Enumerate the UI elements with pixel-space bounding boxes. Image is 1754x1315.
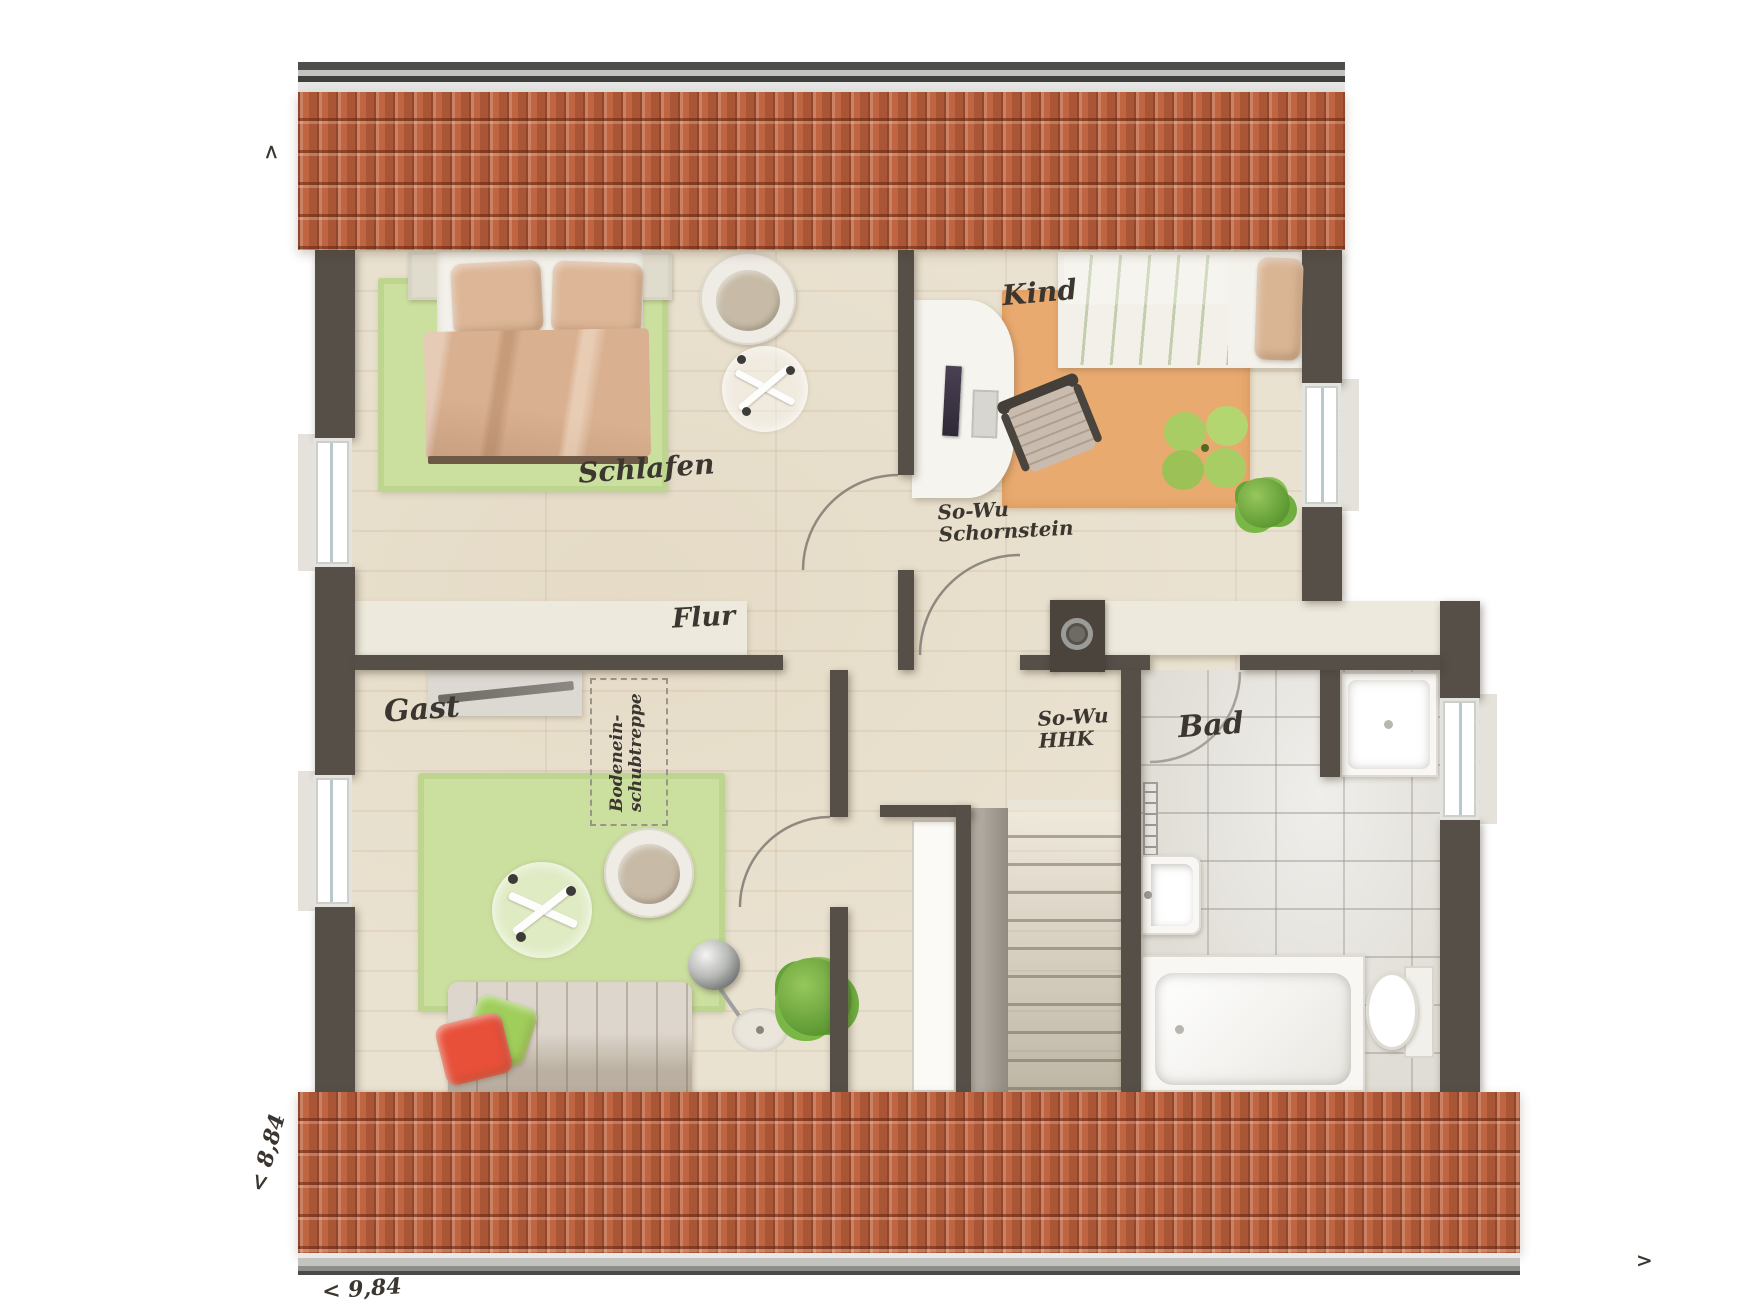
annotation-radiator-line2: HHK [1038, 726, 1094, 753]
north-arrow-icon: > [258, 144, 282, 161]
room-label-kind: Kind [1001, 273, 1079, 312]
annotation-radiator: So-Wu HHK [1037, 704, 1110, 752]
roof-gutter [298, 1258, 1520, 1266]
door-swing-icon [920, 555, 1020, 655]
roof-top [298, 92, 1345, 250]
annotation-loft-ladder-line2: schubtreppe [626, 693, 646, 812]
room-label-gast: Gast [383, 689, 461, 729]
door-swing-icon [803, 475, 898, 570]
dimension-width: < 9,84 [321, 1273, 402, 1304]
room-label-flur: Flur [671, 600, 736, 634]
roof-bottom [298, 1092, 1520, 1253]
direction-arrow-icon: > [1636, 1248, 1653, 1272]
room-label-bad: Bad [1177, 706, 1245, 746]
floorplan-canvas: Schlafen Kind Flur Gast Bad So-Wu Schorn… [0, 0, 1754, 1315]
annotation-loft-ladder-line1: Bodenein- [607, 715, 627, 812]
pillow-icon [1254, 257, 1304, 361]
door-swing-icon [740, 817, 830, 907]
roof-gutter [298, 1271, 1520, 1275]
roof-ridge [298, 62, 1345, 70]
annotation-loft-ladder: Bodenein- schubtreppe [608, 702, 646, 812]
roof-ridge [298, 82, 1345, 92]
annotation-chimney: So-Wu Schornstein [937, 494, 1074, 545]
